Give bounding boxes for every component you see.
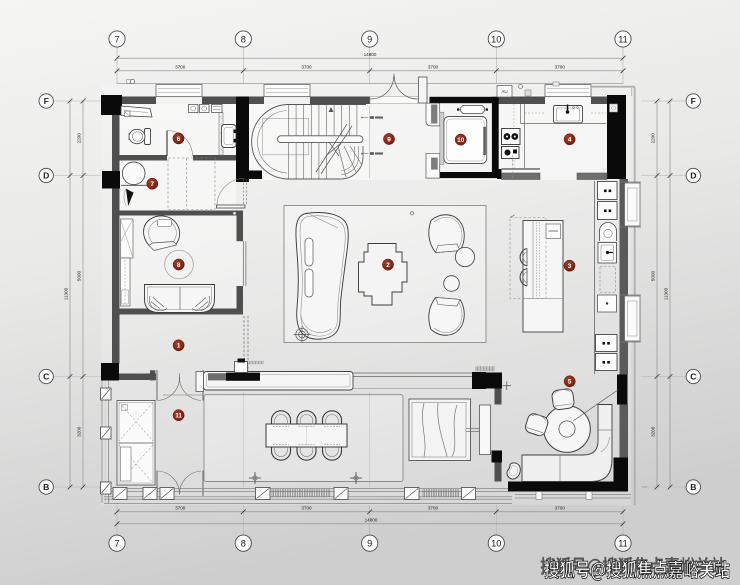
svg-text:5: 5 xyxy=(568,379,572,386)
svg-text:11300: 11300 xyxy=(64,287,69,300)
svg-text:11: 11 xyxy=(618,34,628,44)
svg-text:3700: 3700 xyxy=(428,64,439,69)
svg-text:3700: 3700 xyxy=(555,64,566,69)
svg-text:4: 4 xyxy=(568,137,572,144)
svg-text:3700: 3700 xyxy=(555,505,566,510)
svg-text:D: D xyxy=(690,171,696,181)
svg-text:7: 7 xyxy=(151,181,155,188)
svg-text:AU: AU xyxy=(501,89,507,94)
svg-text:10: 10 xyxy=(491,34,501,44)
svg-text:10: 10 xyxy=(491,539,501,549)
svg-text:F: F xyxy=(691,96,696,106)
svg-text:14800: 14800 xyxy=(364,52,377,57)
svg-text:11: 11 xyxy=(618,539,628,549)
svg-text:3700: 3700 xyxy=(301,505,312,510)
svg-text:6: 6 xyxy=(177,136,181,143)
svg-text:2: 2 xyxy=(386,262,390,269)
svg-text:3700: 3700 xyxy=(175,64,186,69)
svg-text:D: D xyxy=(43,171,49,181)
svg-text:8: 8 xyxy=(177,262,181,269)
svg-text:3700: 3700 xyxy=(175,505,186,510)
svg-text:B: B xyxy=(690,482,696,492)
svg-text:3700: 3700 xyxy=(301,64,312,69)
svg-text:9: 9 xyxy=(367,539,372,549)
svg-text:11: 11 xyxy=(175,413,182,420)
svg-text:11300: 11300 xyxy=(664,287,669,300)
svg-text:C: C xyxy=(690,372,696,382)
svg-text:7: 7 xyxy=(114,34,119,44)
svg-text:2200: 2200 xyxy=(77,133,82,144)
svg-text:14800: 14800 xyxy=(365,518,378,523)
svg-text:B: B xyxy=(43,482,49,492)
svg-text:F: F xyxy=(44,96,49,106)
svg-text:3700: 3700 xyxy=(428,505,439,510)
svg-text:3200: 3200 xyxy=(77,426,82,437)
svg-text:7: 7 xyxy=(114,539,119,549)
svg-text:2200: 2200 xyxy=(651,133,656,144)
svg-text:9: 9 xyxy=(367,34,372,44)
svg-text:5000: 5000 xyxy=(651,270,656,281)
svg-text:C: C xyxy=(43,372,49,382)
svg-text:1: 1 xyxy=(177,343,181,350)
svg-text:3: 3 xyxy=(568,263,572,270)
svg-text:9: 9 xyxy=(387,136,391,143)
svg-text:8: 8 xyxy=(241,34,246,44)
svg-text:3200: 3200 xyxy=(651,426,656,437)
svg-text:5000: 5000 xyxy=(77,270,82,281)
svg-text:10: 10 xyxy=(457,137,465,144)
svg-text:8: 8 xyxy=(241,539,246,549)
